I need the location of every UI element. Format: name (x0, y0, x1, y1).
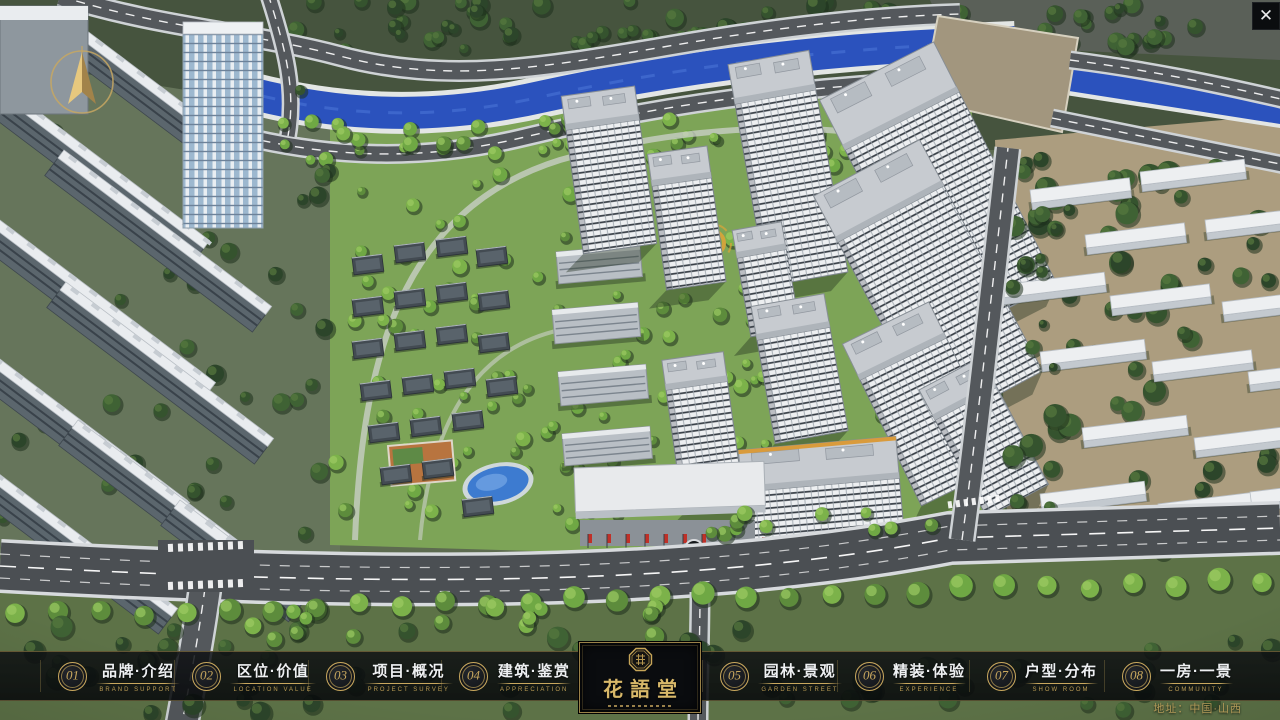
menu-subtitle: LOCATION VALUE (233, 686, 312, 692)
menu-number-badge: 05 (720, 662, 749, 691)
logo-subtext-line (608, 705, 672, 707)
menu-number: 04 (467, 668, 480, 684)
menu-item-brand-intro[interactable]: 01品牌·介绍BRAND SUPPORT (58, 652, 180, 700)
menu-number-badge: 03 (326, 662, 355, 691)
menu-label-group: 一房·一景COMMUNITY (1160, 660, 1233, 693)
menu-underline (364, 683, 453, 684)
menu-title: 建筑·鉴赏 (498, 660, 571, 681)
menu-item-project-overview[interactable]: 03项目·概况PROJECT SURVEY (326, 652, 453, 700)
menu-label-group: 精装·体验EXPERIENCE (893, 660, 966, 693)
menu-number: 02 (200, 668, 213, 684)
close-button[interactable]: ✕ (1252, 2, 1280, 30)
menu-title: 区位·价值 (237, 660, 310, 681)
menu-subtitle: SHOW ROOM (1033, 686, 1090, 692)
menu-label-group: 区位·价值LOCATION VALUE (230, 660, 316, 693)
menu-item-garden-landscape[interactable]: 05园林·景观GARDEN STREET (720, 652, 842, 700)
menu-underline (497, 683, 571, 684)
menu-number-badge: 08 (1122, 662, 1151, 691)
menu-subtitle: PROJECT SURVEY (368, 686, 450, 692)
menu-item-unit-distribution[interactable]: 07户型·分布SHOW ROOM (987, 652, 1098, 700)
menu-item-location-value[interactable]: 02区位·价值LOCATION VALUE (192, 652, 316, 700)
menu-title: 项目·概况 (372, 660, 445, 681)
sales-presentation-app: ✕ 01品牌·介绍BRAND SUPPORT02区位·价值LOCATION VA… (0, 0, 1280, 720)
menu-number-badge: 01 (58, 662, 87, 691)
compass-icon (44, 42, 120, 118)
project-logo-title: 花語堂 (596, 673, 684, 702)
menu-title: 品牌·介绍 (102, 660, 175, 681)
menu-label-group: 建筑·鉴赏APPRECIATION (497, 660, 571, 693)
logo-seal-icon (628, 647, 653, 672)
project-logo-panel: 花語堂 (579, 642, 701, 713)
project-address: 地址：中国·山西 (1153, 700, 1242, 716)
menu-number: 03 (334, 668, 347, 684)
menu-label-group: 园林·景观GARDEN STREET (758, 660, 842, 693)
menu-subtitle: APPRECIATION (500, 686, 568, 692)
menu-underline (96, 683, 180, 684)
menu-underline (1025, 683, 1098, 684)
menu-subtitle: EXPERIENCE (900, 686, 959, 692)
menu-separator (1104, 660, 1105, 692)
menu-title: 一房·一景 (1160, 660, 1233, 681)
menu-subtitle: BRAND SUPPORT (99, 686, 177, 692)
menu-separator (40, 660, 41, 692)
menu-number-badge: 06 (855, 662, 884, 691)
menu-label-group: 户型·分布SHOW ROOM (1025, 660, 1098, 693)
menu-number: 01 (66, 668, 79, 684)
menu-item-architecture[interactable]: 04建筑·鉴赏APPRECIATION (459, 652, 571, 700)
menu-number: 07 (995, 668, 1008, 684)
menu-number: 06 (863, 668, 876, 684)
menu-item-one-room-one-view[interactable]: 08一房·一景COMMUNITY (1122, 652, 1233, 700)
aerial-masterplan-render (0, 0, 1280, 720)
menu-number-badge: 07 (987, 662, 1016, 691)
menu-underline (1160, 683, 1233, 684)
menu-number-badge: 04 (459, 662, 488, 691)
menu-number-badge: 02 (192, 662, 221, 691)
menu-number: 05 (728, 668, 741, 684)
menu-separator (702, 660, 703, 692)
menu-label-group: 品牌·介绍BRAND SUPPORT (96, 660, 180, 693)
menu-subtitle: GARDEN STREET (761, 686, 838, 692)
menu-title: 户型·分布 (1025, 660, 1098, 681)
close-icon: ✕ (1259, 6, 1273, 26)
menu-underline (758, 683, 842, 684)
menu-title: 园林·景观 (764, 660, 837, 681)
menu-item-decor-experience[interactable]: 06精装·体验EXPERIENCE (855, 652, 966, 700)
menu-underline (893, 683, 966, 684)
menu-subtitle: COMMUNITY (1169, 686, 1224, 692)
menu-underline (230, 683, 316, 684)
menu-label-group: 项目·概况PROJECT SURVEY (364, 660, 453, 693)
menu-separator (969, 660, 970, 692)
menu-number: 08 (1130, 668, 1143, 684)
menu-title: 精装·体验 (893, 660, 966, 681)
